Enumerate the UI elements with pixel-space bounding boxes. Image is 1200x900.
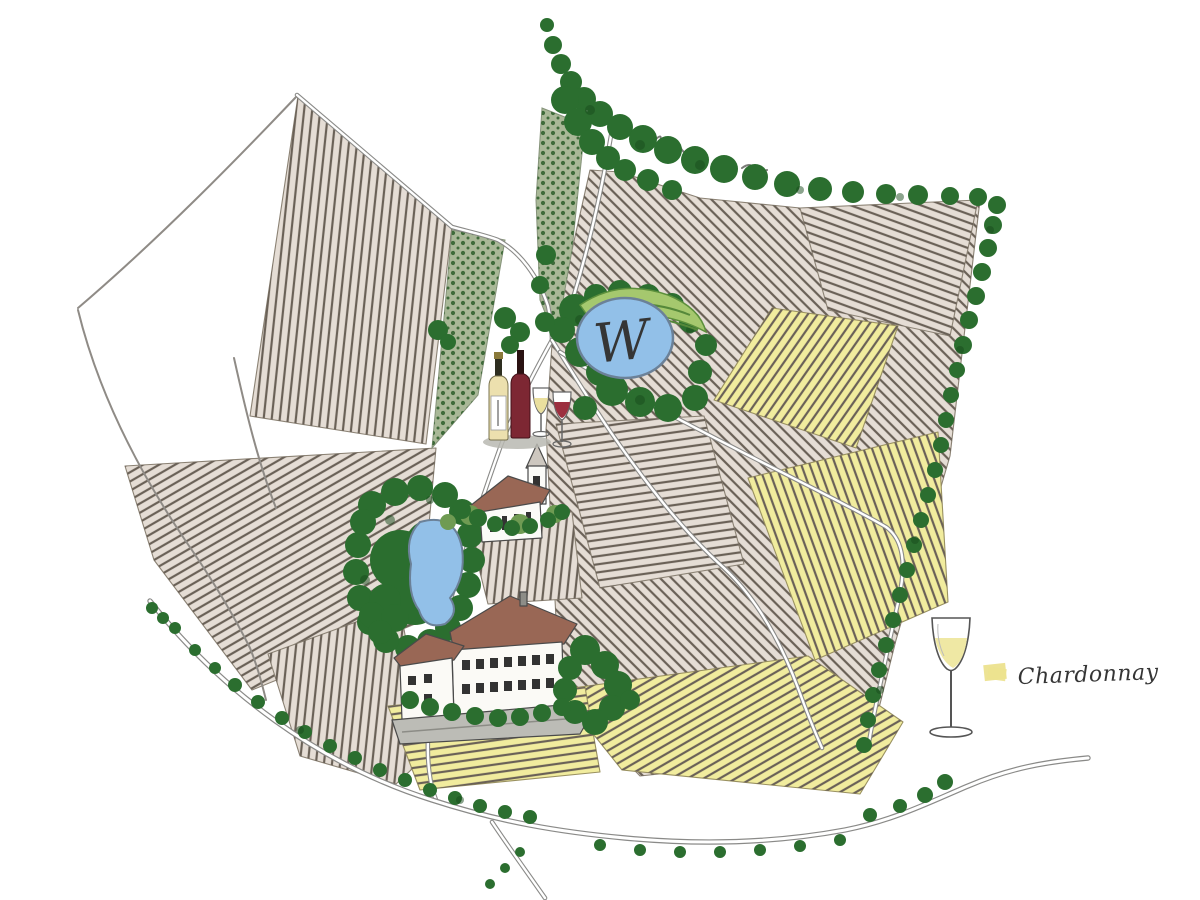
center-pond: W — [577, 298, 673, 378]
vineyard-plot — [250, 96, 452, 444]
vineyard-map-page: W — [0, 0, 1200, 900]
legend: Chardonnay — [930, 618, 1159, 737]
white-wine-glass-icon — [930, 618, 972, 737]
legend-swatch — [983, 663, 1007, 681]
legend-label: Chardonnay — [1017, 660, 1159, 690]
vineyard-map-illustration: W — [0, 0, 1200, 900]
